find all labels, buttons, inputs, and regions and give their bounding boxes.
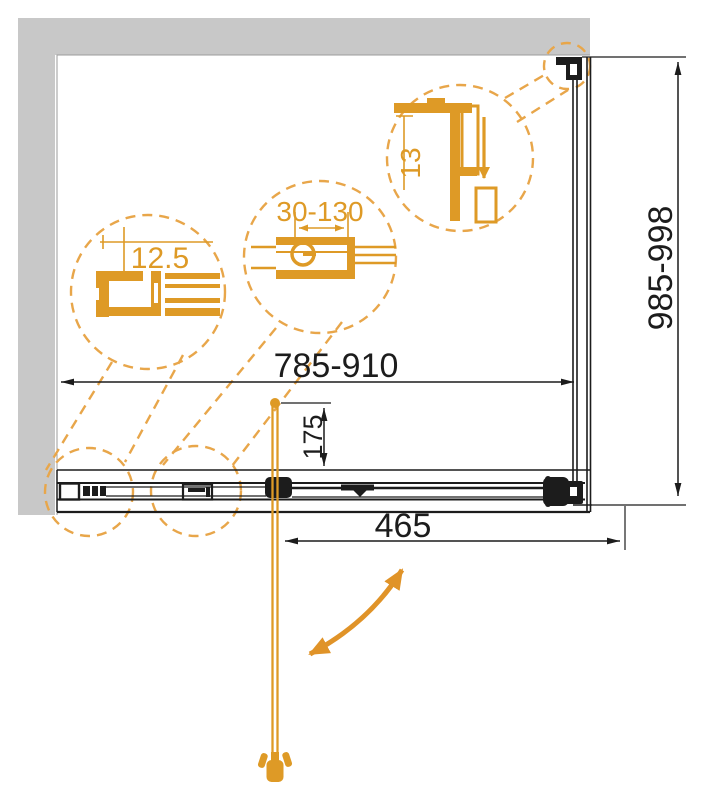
technical-drawing-page: 785-910 985-998 175 465 12.5 (0, 0, 703, 800)
leader-line (163, 328, 276, 465)
open-door-panel (273, 405, 278, 762)
width-dimension-label: 785-910 (274, 347, 399, 385)
detail-2-label: 30-130 (276, 196, 363, 227)
profile-slot (154, 283, 158, 303)
technical-drawing: 785-910 985-998 175 465 12.5 (0, 0, 703, 800)
profile-box (462, 106, 478, 174)
detail-1-wall-profile: 12.5 (94, 227, 220, 317)
wall-profile-section (60, 484, 79, 500)
rail-section (276, 270, 352, 279)
profile-box-lower (476, 188, 496, 222)
wall-left (18, 18, 55, 515)
detail-1-label: 12.5 (131, 242, 189, 275)
fixing-screw (83, 486, 90, 496)
bracket-slot (570, 64, 577, 75)
handle-mount-notch (353, 490, 367, 497)
roller-slot (570, 487, 577, 496)
rail-section (165, 298, 220, 303)
profile-section (394, 103, 472, 113)
height-dimension-label: 985-998 (642, 206, 680, 331)
leader-line (517, 90, 568, 122)
fixing-screw (92, 486, 98, 496)
rail-section (165, 284, 220, 288)
glass-holder-insert (188, 488, 205, 492)
detail-3-corner-profile: 13 (394, 98, 496, 222)
roller-bar (303, 251, 316, 256)
fixing-screw (100, 486, 106, 496)
door-width-dimension-label: 465 (375, 507, 432, 545)
wall-top (18, 18, 590, 55)
rail-section (165, 308, 220, 316)
open-door-fittings (257, 398, 293, 782)
rail-section (276, 237, 350, 245)
door-pivot-cap (270, 398, 280, 408)
roller-wheel (545, 476, 551, 482)
profile-notch (427, 98, 445, 104)
detail-2-adjustment-profile: 30-130 (251, 196, 396, 279)
rail-post (347, 237, 355, 279)
detail-3-label: 13 (395, 147, 426, 178)
profile-notch (94, 288, 99, 300)
profile-crossbar (450, 167, 477, 176)
leader-line (46, 362, 112, 470)
detail-circles (45, 43, 590, 536)
glass-holder-insert (206, 487, 210, 497)
profile-post (450, 111, 460, 221)
leader-line (125, 355, 183, 462)
door-handle-base (267, 760, 284, 782)
roller-wheel (545, 501, 551, 507)
handle-mount (341, 485, 374, 491)
door-swing-arrow (310, 570, 402, 654)
handle-offset-dimension-label: 175 (298, 414, 328, 459)
leader-line (505, 74, 546, 98)
